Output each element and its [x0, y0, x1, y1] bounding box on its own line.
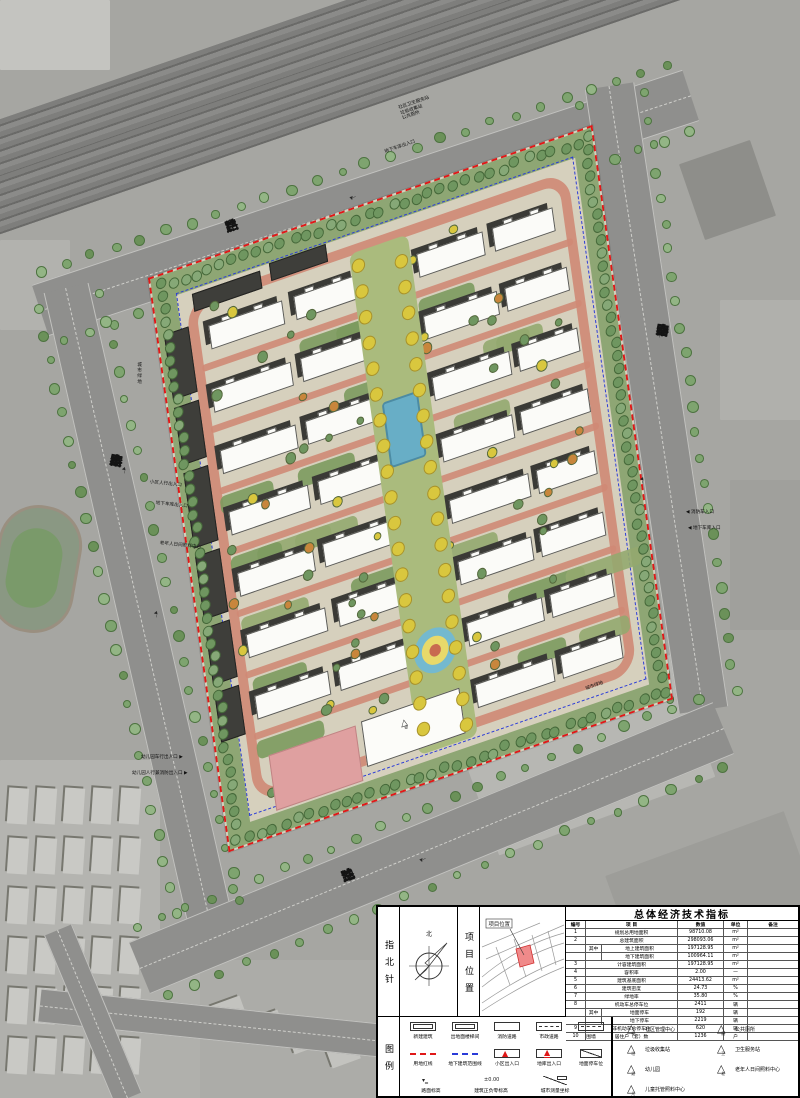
location-panel-label: 项目位置 [458, 907, 480, 1016]
tree-icon [210, 790, 219, 799]
road-elevation-icon: ▾‗ [416, 1075, 446, 1086]
facility-legend-item: △老老年人日间照料中心 [717, 1063, 780, 1075]
tree-icon [634, 145, 642, 153]
table-row: 5建筑基底面积24413.62m² [566, 977, 798, 985]
facility-label: 社区管理中心 [645, 1026, 675, 1033]
tree-icon [158, 913, 167, 922]
legend-item-label: 地库出入口 [537, 1060, 561, 1067]
tree-icon [140, 473, 148, 481]
elevation-mark-icon: ▼─ [638, 477, 644, 484]
tree-icon [109, 340, 118, 349]
aerial-patch [0, 0, 110, 70]
tree-icon [573, 744, 583, 754]
tree-icon [659, 136, 670, 147]
table-row: 其中地面停车192辆 [566, 1009, 798, 1017]
legend-item-label: 路面标高 [421, 1087, 440, 1094]
tree-icon [187, 218, 198, 229]
aerial-building [91, 787, 113, 824]
north-arrow-icon: 北 [402, 910, 456, 1014]
legend-item-label: 建筑正负零标高 [474, 1087, 508, 1094]
tree-icon [547, 753, 555, 761]
facility-legend-item: △幼幼儿园 [627, 1063, 660, 1075]
tree-icon [725, 659, 736, 670]
annotation-label: ◀ 地下车库入口 [688, 526, 721, 532]
aerial-patch [679, 140, 776, 240]
tree-icon [38, 331, 49, 342]
tree-icon [690, 427, 699, 436]
facility-label: 垃圾收集站 [645, 1046, 670, 1053]
zero-elevation-icon: ±0.00 [476, 1075, 506, 1086]
aerial-building [119, 887, 141, 924]
tree-icon [270, 949, 279, 958]
elevation-mark-icon: ▼─ [120, 467, 126, 474]
facility-triangle-icon: △幼 [627, 1063, 642, 1075]
tree-icon [327, 846, 336, 855]
location-map: 项目位置 [480, 907, 566, 1016]
tree-icon [681, 347, 692, 358]
annotation-label: 社区卫生服务站垃圾收集站公共厕所 [398, 96, 434, 122]
tree-icon [712, 558, 722, 568]
legend-item: 地下建筑范围线 [444, 1048, 486, 1067]
aerial-building [35, 837, 57, 874]
tree-icon [717, 762, 728, 773]
aerial-building [35, 1037, 57, 1074]
legend-item-label: 消防道路 [497, 1033, 516, 1040]
facility-triangle-icon: △厕 [717, 1023, 732, 1035]
legend-item-label: 地面停车位 [579, 1060, 603, 1067]
tree-icon [358, 157, 370, 169]
tree-icon [228, 884, 238, 894]
tree-icon [450, 791, 461, 802]
aerial-building [63, 887, 85, 924]
tree-icon [700, 479, 709, 488]
aerial-patch [720, 300, 800, 420]
tree-icon [114, 366, 126, 378]
legend-item-label: 新建建筑 [413, 1033, 432, 1040]
tree-icon [339, 168, 347, 176]
fence-icon [576, 1021, 606, 1032]
community-entrance-icon: ▲ [492, 1048, 522, 1059]
aerial-building [119, 837, 141, 874]
tree-icon [663, 243, 672, 252]
facility-legend-item: △社社区管理中心 [627, 1023, 675, 1035]
tree-icon [684, 126, 695, 137]
tree-icon [47, 356, 56, 365]
tree-icon [533, 840, 543, 850]
facility-triangle-icon: △老 [717, 1063, 732, 1075]
municipal-road-icon [534, 1021, 564, 1032]
legend-item: ▲小区出入口 [486, 1048, 528, 1067]
tree-icon [636, 69, 645, 78]
table-row: 3计容建筑面积197128.95m² [566, 961, 798, 969]
tree-icon [609, 154, 620, 165]
facility-legend-item: △儿儿童托管照料中心 [627, 1083, 685, 1095]
tree-icon [189, 711, 201, 723]
tree-icon [695, 775, 704, 784]
tree-icon [85, 249, 94, 258]
tree-icon [62, 259, 72, 269]
table-row: 2总建筑面积298093.06m² [566, 937, 798, 945]
tree-icon [173, 630, 185, 642]
legend-item-label: 用地红线 [413, 1060, 432, 1067]
tree-icon [674, 323, 685, 334]
survey-coord-icon [540, 1075, 570, 1086]
legend-item-label: 出地面楼梯间 [451, 1033, 480, 1040]
aerial-building [35, 887, 57, 924]
legend-item-label: 城市测量坐标 [541, 1087, 570, 1094]
aerial-building [63, 1037, 85, 1074]
legend-item: 地面停车位 [570, 1048, 612, 1067]
tree-icon [349, 914, 359, 924]
tree-icon [93, 566, 103, 576]
tree-icon [732, 686, 743, 697]
tree-icon [133, 446, 143, 456]
stair-exit-icon [450, 1021, 480, 1032]
facility-label: 儿童托管照料中心 [645, 1086, 685, 1093]
legend-item: 新建建筑 [402, 1021, 444, 1040]
tree-icon [254, 874, 263, 883]
table-row: 地下建筑面积100964.11m² [566, 953, 798, 961]
tree-icon [95, 289, 103, 297]
tree-icon [481, 861, 489, 869]
tree-icon [505, 848, 515, 858]
facility-legend-item: △厕公共厕所 [717, 1023, 755, 1035]
tree-icon [280, 862, 290, 872]
facility-legend-item: △垃垃圾收集站 [627, 1043, 670, 1055]
table-header-cell: 数值 [678, 921, 724, 928]
tree-icon [57, 407, 67, 417]
tree-icon [88, 541, 99, 552]
tree-icon [211, 210, 219, 218]
tree-icon [134, 235, 145, 246]
aerial-building [63, 787, 85, 824]
aerial-building [7, 887, 29, 924]
facility-triangle-icon: △垃 [627, 1043, 642, 1055]
legend-item-label: 小区出入口 [495, 1060, 519, 1067]
tree-icon [638, 795, 649, 806]
tree-icon [170, 606, 178, 614]
tree-icon [716, 582, 728, 594]
annotation-label: 幼儿园人行兼消防出入口 ▶ [132, 771, 188, 777]
table-row: 4容积率2.00— [566, 969, 798, 977]
aerial-building [119, 787, 141, 824]
tree-icon [323, 924, 332, 933]
aerial-building [35, 787, 57, 824]
tree-icon [695, 454, 704, 463]
tree-icon [295, 938, 304, 947]
tree-icon [105, 620, 116, 631]
tree-icon [80, 513, 92, 525]
tree-icon [110, 644, 122, 656]
legend-grid: 新建建筑出地面楼梯间消防道路市政道路围墙用地红线地下建筑范围线▲小区出入口▲地库… [400, 1017, 612, 1096]
facility-triangle-icon: △儿 [627, 1083, 642, 1095]
tree-icon [120, 395, 128, 403]
legend-item: 围墙 [570, 1021, 612, 1040]
tree-icon [142, 776, 152, 786]
tree-icon [650, 140, 659, 149]
tree-icon [145, 805, 155, 815]
tree-icon [434, 132, 446, 144]
tree-icon [160, 224, 171, 235]
aerial-building [63, 837, 85, 874]
annotation-label: ◀ 消防车入口 [686, 510, 714, 516]
tree-icon [36, 266, 48, 278]
tree-icon [133, 308, 145, 320]
tree-icon [559, 825, 570, 836]
table-title: 总体经济技术指标 [566, 907, 798, 921]
annotation-label: 城市绿地 [136, 362, 142, 384]
tree-icon [402, 813, 411, 822]
tree-icon [286, 185, 297, 196]
kindergarten-marker-icon: △幼 [400, 718, 408, 729]
facility-label: 幼儿园 [645, 1066, 660, 1073]
tree-icon [259, 192, 269, 202]
tree-icon [119, 671, 128, 680]
tree-icon [687, 401, 699, 413]
tree-icon [472, 782, 483, 793]
tree-icon [428, 883, 437, 892]
indicator-table: 总体经济技术指标 编号项 目数值单位备注 1规划总用地面积98710.08m²2… [566, 907, 798, 1016]
facility-label: 老年人日间照料中心 [735, 1066, 780, 1073]
tree-icon [303, 854, 313, 864]
tree-icon [68, 461, 76, 469]
tree-icon [512, 112, 522, 122]
facility-label: 公共厕所 [735, 1026, 755, 1033]
tree-icon [485, 117, 494, 126]
aerial-building [91, 837, 113, 874]
tree-icon [60, 336, 68, 344]
tree-icon [665, 784, 676, 795]
legend-item: ▲地库出入口 [528, 1048, 570, 1067]
legend-item-label: 地下建筑范围线 [448, 1060, 482, 1067]
underground-line-icon [450, 1048, 480, 1059]
tree-icon [207, 895, 217, 905]
tree-icon [228, 867, 239, 878]
tree-icon [49, 383, 61, 395]
facility-label: 卫生服务站 [735, 1046, 760, 1053]
tree-icon [666, 272, 677, 283]
tree-icon [351, 834, 362, 845]
tree-icon [667, 705, 676, 714]
tree-icon [154, 829, 166, 841]
tree-icon [214, 970, 224, 980]
tree-icon [179, 657, 189, 667]
aerial-building [7, 937, 29, 974]
tree-icon [129, 723, 141, 735]
tree-icon [453, 871, 461, 879]
tree-icon [184, 686, 193, 695]
tree-icon [461, 128, 470, 137]
tree-icon [189, 979, 201, 991]
legend-item: 消防道路 [486, 1021, 528, 1040]
tree-icon [237, 202, 246, 211]
legend-item: 市政道路 [528, 1021, 570, 1040]
legend-item: ±0.00建筑正负零标高 [470, 1075, 512, 1094]
tree-icon [145, 501, 156, 512]
title-block: 指北针 北 项目位置 [376, 905, 800, 1098]
tree-icon [670, 296, 680, 306]
tree-icon [719, 608, 731, 620]
table-header-cell: 项 目 [586, 921, 678, 928]
legend-item: ▾‗路面标高 [410, 1075, 452, 1094]
north-arrow-panel: 北 [400, 907, 458, 1016]
table-header-cell: 备注 [748, 921, 798, 928]
tree-icon [75, 486, 87, 498]
north-arrow-label: 指北针 [378, 907, 400, 1016]
tree-icon [165, 882, 175, 892]
site-plan-sheet: △幼 社区卫生服务站垃圾收集站公共厕所地下车库出入口◀ 消防车入口◀ 地下车库入… [0, 0, 800, 1098]
table-row: 8机动车总停车位2411辆 [566, 1001, 798, 1009]
facility-legend: △社社区管理中心△厕公共厕所△垃垃圾收集站△卫卫生服务站△幼幼儿园△老老年人日间… [612, 1017, 798, 1096]
tree-icon [536, 102, 546, 112]
svg-text:项目位置: 项目位置 [489, 920, 511, 928]
tree-icon [123, 700, 131, 708]
legend-item-label: 市政道路 [539, 1033, 558, 1040]
legend-item-label: 围墙 [586, 1033, 596, 1040]
new-building-icon [408, 1021, 438, 1032]
tree-icon [587, 817, 595, 825]
legend-item: 出地面楼梯间 [444, 1021, 486, 1040]
tree-icon [685, 375, 696, 386]
aerial-building [7, 1037, 29, 1074]
legend-item: 用地红线 [402, 1048, 444, 1067]
annotation-label: 幼儿园车行出入口 ▶ [141, 755, 183, 761]
tree-icon [163, 990, 173, 1000]
tree-icon [98, 593, 110, 605]
tree-icon [235, 896, 244, 905]
tree-icon [562, 92, 573, 103]
tree-icon [160, 577, 170, 587]
tree-icon [662, 220, 672, 230]
table-row: 6建筑密度24.73% [566, 985, 798, 993]
table-row: 1规划总用地面积98710.08m² [566, 929, 798, 937]
aerial-building [91, 887, 113, 924]
tree-icon [148, 524, 160, 536]
tree-icon [157, 553, 166, 562]
tree-icon [157, 856, 168, 867]
tree-icon [63, 436, 74, 447]
tree-icon [312, 175, 324, 187]
tree-icon [640, 88, 649, 97]
tree-icon [203, 762, 213, 772]
tree-icon [663, 61, 671, 69]
table-row: 其中地上建筑面积197128.95m² [566, 945, 798, 953]
facility-triangle-icon: △社 [627, 1023, 642, 1035]
tree-icon [650, 168, 661, 179]
tree-icon [575, 101, 584, 110]
garage-entrance-icon: ▲ [534, 1048, 564, 1059]
table-header-row: 编号项 目数值单位备注 [566, 921, 798, 929]
tree-icon [198, 736, 208, 746]
tree-icon [422, 803, 433, 814]
fire-road-icon [492, 1021, 522, 1032]
aerial-building [7, 787, 29, 824]
elevation-mark-icon: ▼─ [152, 611, 158, 618]
surface-parking-icon [576, 1048, 606, 1059]
tree-icon [614, 808, 622, 816]
aerial-building [91, 937, 113, 974]
tree-icon [126, 420, 137, 431]
tree-icon [112, 243, 121, 252]
red-line-icon [408, 1048, 438, 1059]
tree-icon [181, 903, 189, 911]
legend-panel-label: 图例 [378, 1017, 400, 1096]
svg-text:北: 北 [426, 930, 432, 938]
table-header-cell: 单位 [724, 921, 748, 928]
tree-icon [133, 923, 142, 932]
tree-icon [656, 194, 666, 204]
aerial-building [7, 987, 29, 1024]
table-header-cell: 编号 [566, 921, 586, 928]
legend-item: 城市测量坐标 [534, 1075, 576, 1094]
facility-legend-item: △卫卫生服务站 [717, 1043, 760, 1055]
location-map-drawing: 项目位置 [480, 907, 566, 1015]
aerial-building [7, 837, 29, 874]
facility-triangle-icon: △卫 [717, 1043, 732, 1055]
tree-icon [612, 77, 621, 86]
tree-icon [399, 891, 409, 901]
table-row: 7绿地率35.80% [566, 993, 798, 1001]
tree-icon [723, 633, 734, 644]
tree-icon [100, 316, 111, 327]
tree-icon [375, 821, 385, 831]
tree-icon [693, 694, 705, 706]
tree-icon [597, 733, 606, 742]
aerial-patch [730, 480, 800, 630]
